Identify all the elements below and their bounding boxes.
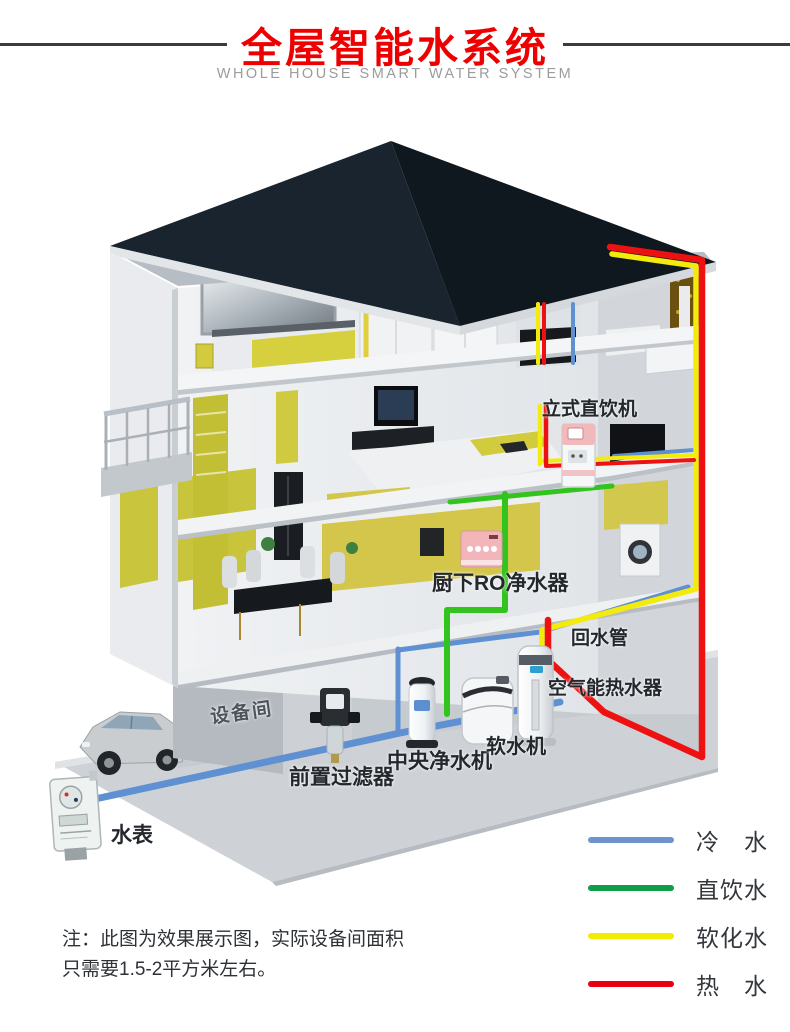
softened-water-line bbox=[588, 933, 674, 939]
legend-item-hot: 热 水 bbox=[588, 960, 788, 1008]
label-air-heater: 空气能热水器 bbox=[548, 673, 662, 700]
label-pre-filter: 前置过滤器 bbox=[289, 761, 394, 791]
hot-water-line bbox=[588, 981, 674, 987]
central-purifier-device bbox=[406, 677, 438, 748]
footnote: 注：此图为效果展示图，实际设备间面积 只需要1.5-2平方米左右。 bbox=[62, 925, 404, 985]
legend-item-softened: 软化水 bbox=[588, 912, 788, 960]
dining-chair bbox=[222, 556, 237, 588]
label-central-purifier: 中央净水机 bbox=[387, 745, 492, 775]
drinking-water-line bbox=[588, 885, 674, 891]
legend-label: 软化水 bbox=[696, 919, 768, 953]
legend: 冷 水 直饮水 软化水 热 水 bbox=[588, 816, 788, 1008]
legend-label: 冷 水 bbox=[696, 823, 768, 857]
legend-item-drinking: 直饮水 bbox=[588, 864, 788, 912]
label-return-pipe: 回水管 bbox=[571, 623, 628, 650]
water-meter-icon bbox=[49, 770, 103, 861]
label-water-meter: 水表 bbox=[111, 819, 153, 849]
cold-water-line bbox=[588, 837, 674, 843]
label-standing-dispenser: 立式直饮机 bbox=[542, 394, 637, 421]
legend-label: 直饮水 bbox=[696, 871, 768, 905]
legend-item-cold: 冷 水 bbox=[588, 816, 788, 864]
label-undersink-ro: 厨下RO净水器 bbox=[432, 567, 569, 597]
footnote-line1: 注：此图为效果展示图，实际设备间面积 bbox=[62, 925, 404, 955]
footnote-line2: 只需要1.5-2平方米左右。 bbox=[62, 955, 404, 985]
ro-purifier-device bbox=[461, 531, 502, 567]
standing-dispenser-device bbox=[562, 424, 595, 487]
legend-label: 热 水 bbox=[696, 967, 768, 1001]
page: 全屋智能水系统 WHOLE HOUSE SMART WATER SYSTEM bbox=[0, 0, 790, 1032]
oven bbox=[420, 528, 444, 556]
label-softener: 软水机 bbox=[486, 730, 546, 759]
